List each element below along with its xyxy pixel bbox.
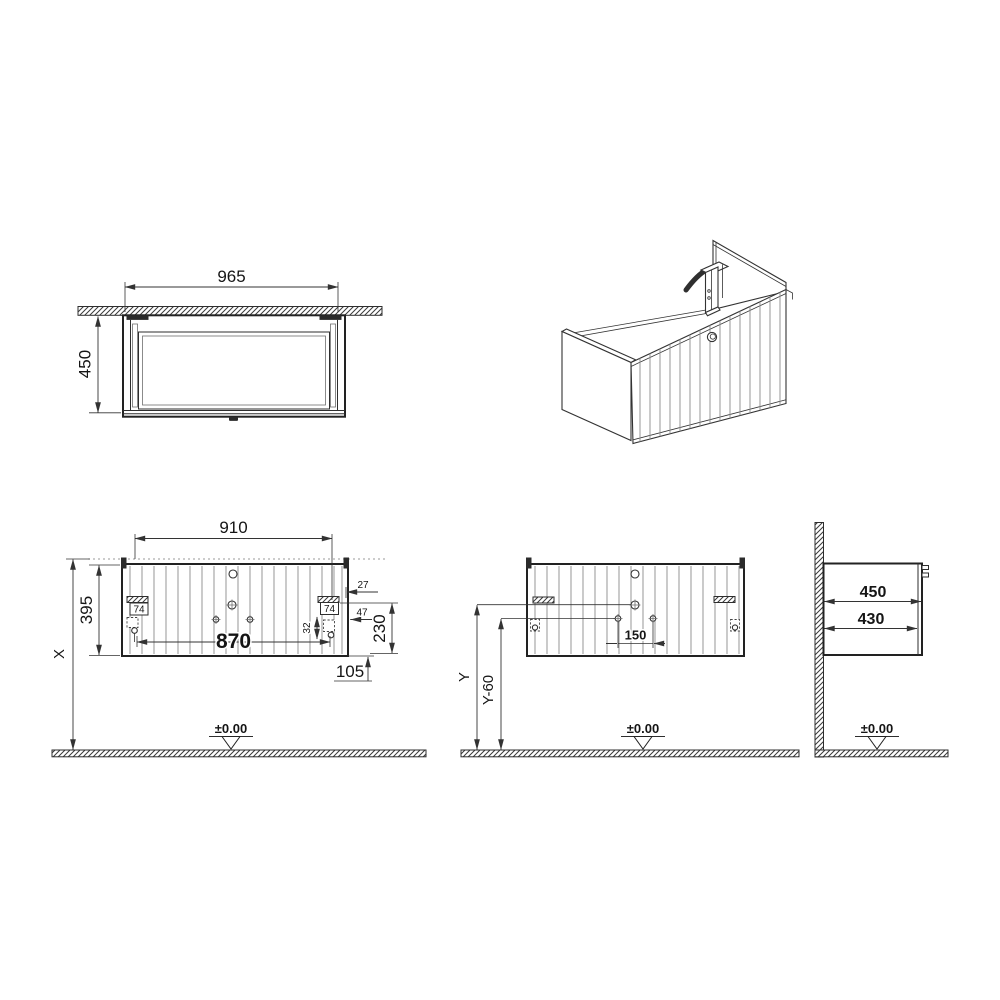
wall-bracket-left xyxy=(127,597,148,603)
depth-inner-label: 430 xyxy=(858,611,885,628)
wall-section-side xyxy=(815,523,824,758)
install-datum-triangle xyxy=(634,737,652,750)
installation-view: 150 Y Y-60 ±0.00 xyxy=(456,558,799,757)
rail-tab-right xyxy=(344,558,350,569)
faucet-hole-upper-2 xyxy=(631,570,639,578)
hole-spacing-label: 150 xyxy=(625,628,647,643)
bracket-right-label: 74 xyxy=(324,604,336,615)
edge-offset-label: 27 xyxy=(357,580,369,591)
inner-span-label: 870 xyxy=(216,630,251,653)
floor-height-label: X xyxy=(51,649,68,659)
front-datum-triangle xyxy=(222,737,240,750)
bottom-offset-label: 105 xyxy=(336,662,364,681)
height-y-label: Y xyxy=(456,672,473,682)
depth-outer-label: 450 xyxy=(860,584,887,601)
rear-rim-edges xyxy=(567,310,709,339)
top-view: 965 450 xyxy=(76,267,383,421)
rail-tab-left xyxy=(121,558,127,569)
wall-section-plan xyxy=(78,307,382,316)
ground-line-front xyxy=(52,750,426,757)
height-y60-label: Y-60 xyxy=(480,675,497,705)
isometric-view xyxy=(562,241,793,444)
handle-profile-bottom xyxy=(922,573,929,577)
bracket-left-label: 74 xyxy=(133,605,145,616)
side-datum-label: ±0.00 xyxy=(861,721,893,736)
top-width-label: 965 xyxy=(217,267,245,286)
wall-bracket-right xyxy=(318,597,339,603)
slide-height-label: 230 xyxy=(370,614,389,642)
install-datum-label: ±0.00 xyxy=(627,721,659,736)
technical-drawing-sheet: 965 450 xyxy=(0,0,1000,1000)
left-end-panel xyxy=(562,332,631,441)
slide-offset-label: 47 xyxy=(356,608,368,619)
top-depth-label: 450 xyxy=(76,350,95,378)
side-view: 450 430 ±0.00 xyxy=(815,523,948,758)
wall-bracket-left-2 xyxy=(533,597,554,603)
wall-bracket-right-2 xyxy=(714,597,735,603)
rail-span-label: 910 xyxy=(219,518,247,537)
slide-bracket-right xyxy=(324,620,335,632)
cabinet-side-outline xyxy=(824,564,923,656)
front-view: X 74 74 910 395 870 27 xyxy=(51,518,426,757)
side-datum-triangle xyxy=(868,737,886,750)
hanging-rail-left-plan xyxy=(127,315,149,320)
faucet-hole-upper xyxy=(229,570,237,578)
slide-bracket-left xyxy=(127,618,138,628)
ground-line-side xyxy=(815,750,948,757)
slide-gap-label: 32 xyxy=(302,622,313,634)
handle-profile-top xyxy=(922,566,929,570)
hanging-rail-right-plan xyxy=(320,315,342,320)
body-height-label: 395 xyxy=(77,596,96,624)
front-datum-label: ±0.00 xyxy=(215,721,247,736)
cabinet-plan-outline xyxy=(123,315,345,416)
knob-plan xyxy=(229,417,238,421)
ground-line-install xyxy=(461,750,799,757)
vanity-installation-drawing: 965 450 xyxy=(0,0,1000,1000)
